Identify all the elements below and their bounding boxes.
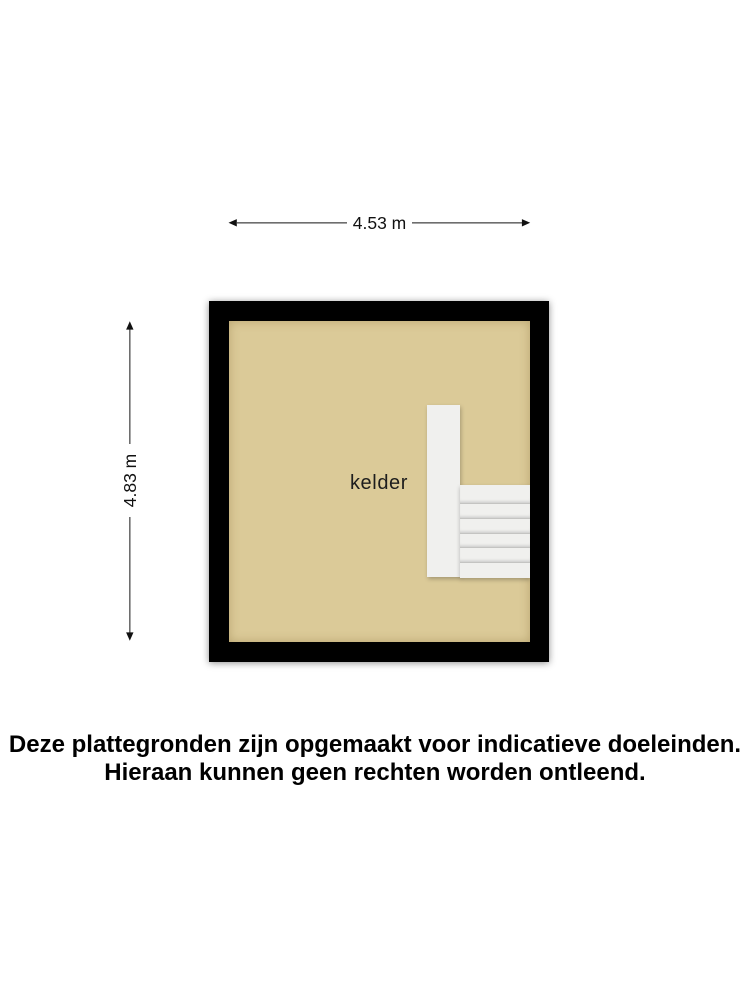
svg-text:4.83 m: 4.83 m bbox=[120, 454, 140, 508]
svg-text:4.53 m: 4.53 m bbox=[353, 213, 407, 233]
